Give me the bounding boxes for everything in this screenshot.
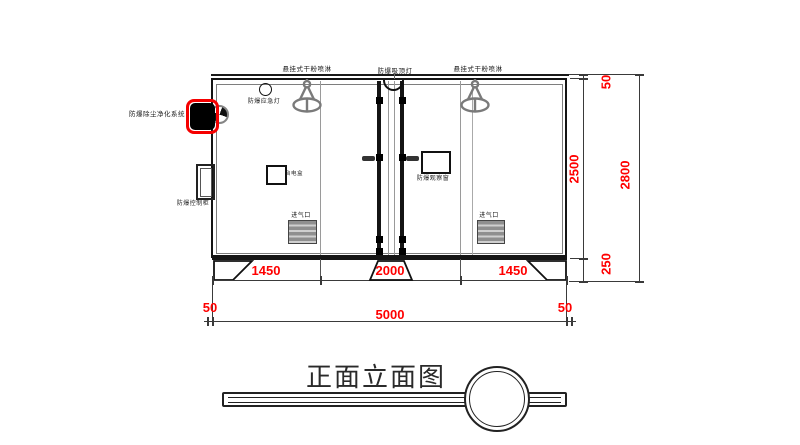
duct-node bbox=[376, 248, 383, 255]
dim-offset-right: 50 bbox=[558, 300, 572, 315]
observation-window-icon bbox=[421, 151, 451, 174]
power-box-icon bbox=[266, 165, 287, 185]
air-inlet-right-label: 进气口 bbox=[479, 210, 499, 219]
dim-offset-left: 50 bbox=[203, 300, 217, 315]
emergency-light-icon bbox=[259, 83, 272, 96]
handle-left bbox=[362, 156, 375, 161]
control-cabinet-icon bbox=[196, 164, 215, 200]
dim-tick bbox=[212, 317, 214, 326]
duct-node bbox=[376, 97, 383, 104]
purifier-highlight-box bbox=[186, 99, 219, 134]
sprinkler-right-label: 悬挂式干粉喷淋 bbox=[454, 63, 503, 73]
control-cabinet-label: 防爆控制柜 bbox=[177, 198, 210, 207]
purifier-body bbox=[190, 103, 215, 130]
dim-tick bbox=[320, 276, 322, 285]
duct-node bbox=[399, 97, 406, 104]
control-cabinet-inner bbox=[200, 168, 212, 197]
dry-powder-sprinkler-icon bbox=[289, 79, 325, 115]
duct-node bbox=[376, 236, 383, 243]
duct-inner-line-1 bbox=[388, 81, 389, 255]
dim-line-right-outer bbox=[639, 74, 640, 282]
drawing-title: 正面立面图 bbox=[306, 357, 446, 394]
air-inlet-vent bbox=[477, 220, 505, 244]
dim-inner-height: 2500 bbox=[567, 155, 582, 184]
dim-line-right-inner bbox=[583, 74, 584, 282]
dim-bottom-left: 1450 bbox=[252, 263, 281, 278]
power-box-label: 台电盒 bbox=[285, 169, 303, 177]
handle-right bbox=[406, 156, 419, 161]
dim-total-width: 5000 bbox=[376, 307, 405, 322]
duct-node bbox=[399, 248, 406, 255]
dim-tick bbox=[571, 317, 573, 326]
duct-node bbox=[376, 154, 383, 161]
dim-roof-offset: 50 bbox=[599, 75, 614, 89]
duct-bar-right bbox=[400, 81, 404, 255]
air-inlet-vent bbox=[288, 220, 317, 244]
ceiling-lamp-label: 防爆吸顶灯 bbox=[378, 65, 413, 75]
duct-bar-left bbox=[377, 81, 381, 255]
dim-tick bbox=[635, 74, 644, 76]
dim-bottom-right: 1450 bbox=[499, 263, 528, 278]
duct-inner-line-2 bbox=[394, 81, 395, 255]
dry-powder-sprinkler-icon bbox=[457, 79, 493, 115]
dim-tick bbox=[579, 74, 588, 76]
circle-inner-ring bbox=[469, 371, 525, 427]
observation-window-label: 防爆观察窗 bbox=[417, 173, 450, 182]
dim-tick bbox=[579, 258, 588, 260]
duct-node bbox=[399, 154, 406, 161]
title-symbol-circle bbox=[464, 366, 530, 432]
sprinkler-left-label: 悬挂式干粉喷淋 bbox=[283, 63, 332, 73]
elevation-drawing: 1450 2000 1450 50 5000 50 50 2500 250 28… bbox=[0, 0, 800, 445]
dim-base-height: 250 bbox=[599, 253, 614, 275]
purifier-label: 防爆除尘净化系统 bbox=[129, 108, 185, 118]
center-ramp bbox=[367, 259, 414, 283]
dim-tick bbox=[460, 276, 462, 285]
dim-tick bbox=[635, 281, 644, 283]
emergency-light-label: 防爆应急灯 bbox=[248, 96, 281, 105]
dim-tick bbox=[579, 78, 588, 80]
dim-tick bbox=[579, 281, 588, 283]
duct-node bbox=[399, 236, 406, 243]
dim-total-height: 2800 bbox=[618, 161, 633, 190]
dim-tick bbox=[207, 317, 209, 326]
air-inlet-left-label: 进气口 bbox=[291, 210, 311, 219]
dim-tick bbox=[566, 317, 568, 326]
